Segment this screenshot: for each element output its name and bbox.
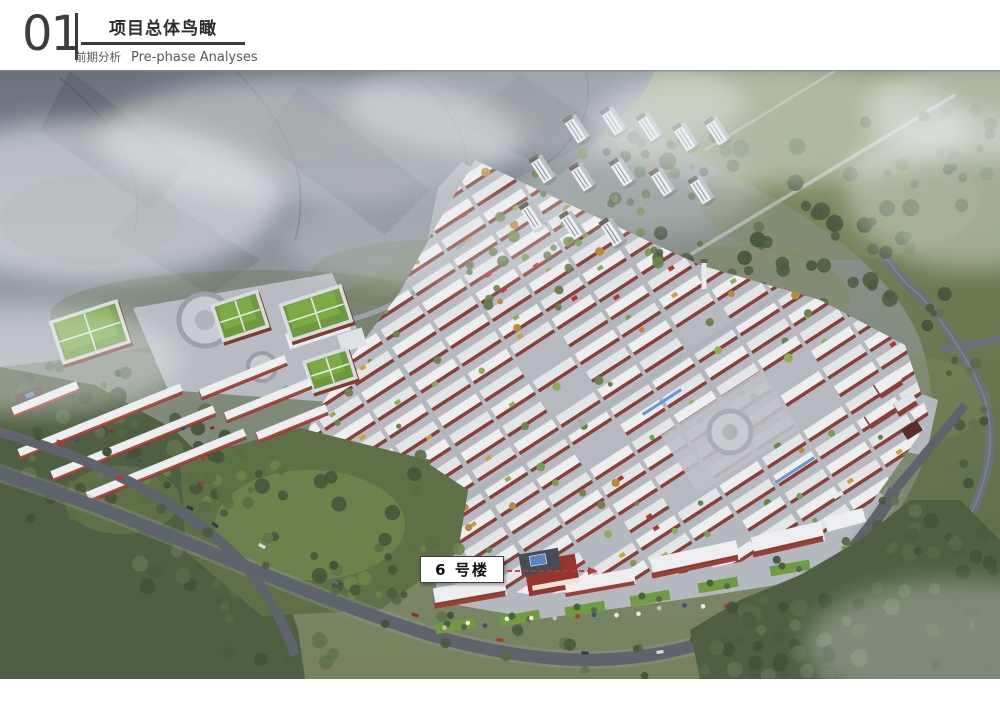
title-underline	[81, 42, 245, 45]
slide-page: 01 项目总体鸟瞰 前期分析 Pre-phase Analyses 6 号楼	[0, 0, 1000, 707]
page-title: 项目总体鸟瞰	[81, 20, 245, 39]
aerial-rendering-canvas	[0, 70, 1000, 679]
aerial-rendering: 6 号楼	[0, 70, 1000, 679]
image-border	[0, 70, 1000, 72]
subtitle-en: Pre-phase Analyses	[131, 50, 258, 65]
subtitle-row: 前期分析 Pre-phase Analyses	[75, 49, 245, 65]
section-number: 01	[22, 10, 79, 58]
header-title-block: 项目总体鸟瞰 前期分析 Pre-phase Analyses	[81, 20, 245, 65]
building-6-label: 6 号楼	[420, 556, 504, 583]
slide-header: 01 项目总体鸟瞰 前期分析 Pre-phase Analyses	[0, 0, 1000, 70]
subtitle-cn: 前期分析	[75, 49, 121, 65]
